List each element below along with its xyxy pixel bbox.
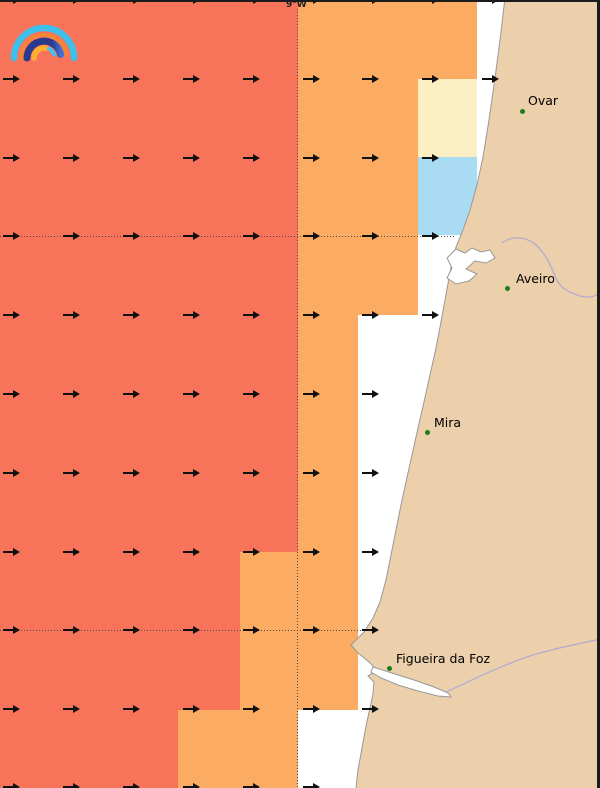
rainbow-logo-icon <box>8 12 80 68</box>
city-label: Aveiro <box>516 271 555 286</box>
wave-forecast-map: OvarAveiroMiraFigueira da Foz 9°W <box>0 0 600 788</box>
city-markers-layer: OvarAveiroMiraFigueira da Foz <box>0 0 600 788</box>
city-marker <box>505 286 510 291</box>
city-marker <box>520 109 525 114</box>
city-label: Mira <box>434 415 461 430</box>
city-marker <box>387 666 392 671</box>
city-label: Ovar <box>528 93 558 108</box>
map-frame-top <box>0 0 600 2</box>
city-label: Figueira da Foz <box>396 651 490 666</box>
city-marker <box>425 430 430 435</box>
